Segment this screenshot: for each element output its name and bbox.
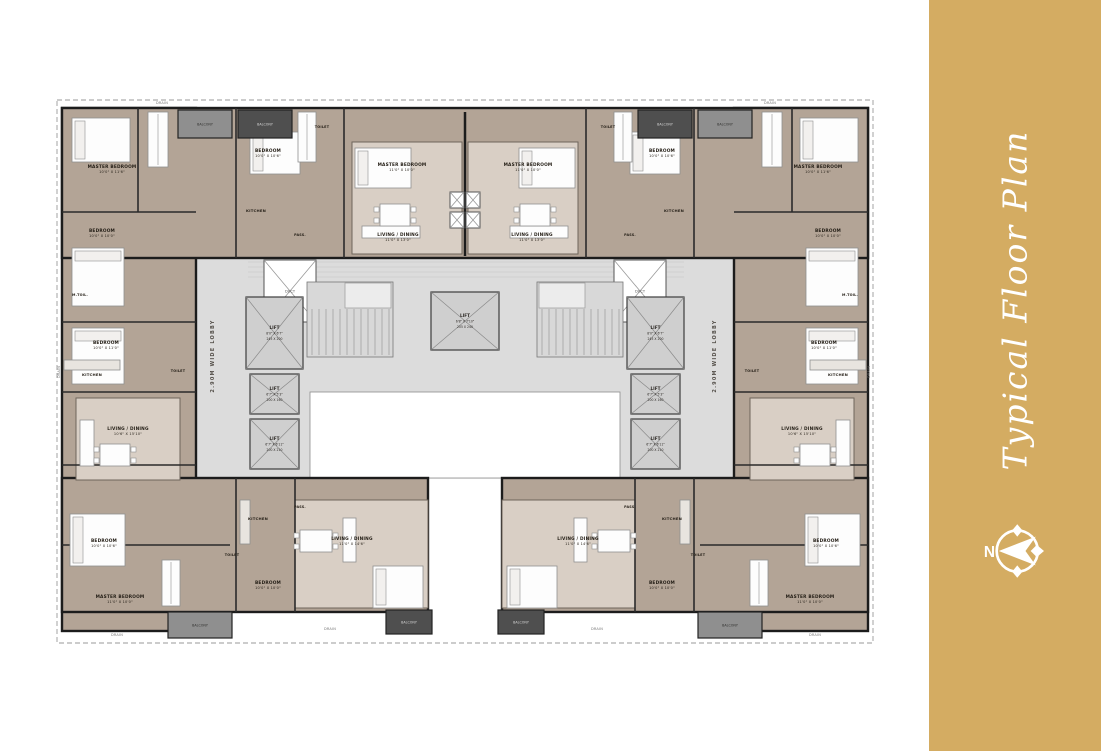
room-label: KITCHEN bbox=[248, 516, 268, 521]
balcony-label: BALCONY bbox=[192, 623, 209, 627]
duct-label: DUCT bbox=[635, 290, 646, 294]
compass-needle bbox=[999, 537, 1036, 566]
compass-tick-top bbox=[1012, 524, 1022, 536]
compass-tick-right bbox=[1031, 545, 1044, 557]
room-label: BEDROOM10'0" X 11'0" bbox=[93, 340, 119, 350]
chair bbox=[294, 544, 299, 549]
chair bbox=[94, 458, 99, 463]
drain-label: DRAIN bbox=[324, 627, 336, 631]
chair bbox=[794, 458, 799, 463]
room-label: BEDROOM10'0" X 10'0" bbox=[649, 580, 675, 590]
chair bbox=[551, 207, 556, 212]
room-label: KITCHEN bbox=[828, 372, 848, 377]
lift-label: LIFT bbox=[651, 436, 661, 441]
lift-label: 6'7" X 6'11" bbox=[265, 442, 284, 446]
chair bbox=[631, 533, 636, 538]
lift-label: 200 X 210 bbox=[267, 448, 283, 452]
chair bbox=[294, 533, 299, 538]
lobby-label: 2.90M WIDE LOBBY bbox=[712, 319, 718, 392]
compass-north-label: N bbox=[984, 544, 995, 561]
chair bbox=[631, 544, 636, 549]
balcony-label: BALCONY bbox=[257, 122, 274, 126]
room-label: PASS. bbox=[294, 505, 306, 509]
room-label: BEDROOM10'0" X 10'6" bbox=[813, 538, 839, 548]
room-label: TOILET bbox=[315, 125, 330, 129]
lift-label: LIFT bbox=[270, 386, 280, 391]
room-label: TOILET bbox=[171, 369, 186, 373]
kitchen-counter bbox=[810, 360, 866, 370]
courtyard-void bbox=[310, 392, 620, 478]
drain-label: DRAIN bbox=[764, 101, 776, 105]
dining-table bbox=[800, 444, 830, 466]
lift-label: 8'0" X 6'7" bbox=[647, 331, 664, 335]
room-label: TOILET bbox=[745, 369, 760, 373]
title-sidebar: Typical Floor Plan N bbox=[929, 0, 1101, 751]
chair bbox=[514, 207, 519, 212]
balcony-label: BALCONY bbox=[197, 122, 214, 126]
bed-pillow bbox=[376, 569, 386, 605]
chair bbox=[94, 447, 99, 452]
lift-label: LIFT bbox=[460, 313, 470, 318]
chair bbox=[794, 447, 799, 452]
plan-canvas: DUCTDUCTLIFT8'0" X 6'7"245 X 200LIFT8'0"… bbox=[0, 0, 929, 751]
bed-pillow bbox=[75, 251, 121, 261]
room-label: BEDROOM10'0" X 11'0" bbox=[811, 340, 837, 350]
kitchen-counter bbox=[680, 500, 690, 544]
balcony-label: BALCONY bbox=[401, 620, 418, 624]
bed-pillow bbox=[809, 331, 855, 341]
room-label: BEDROOM10'0" X 10'0" bbox=[815, 228, 841, 238]
chair bbox=[411, 218, 416, 223]
chair bbox=[831, 447, 836, 452]
room-label: KITCHEN bbox=[664, 208, 684, 213]
lift-label: 6'8" X 7'10" bbox=[456, 319, 475, 323]
balcony-label: BALCONY bbox=[657, 122, 674, 126]
lift-label: LIFT bbox=[651, 386, 661, 391]
drain-label: DRAIN bbox=[809, 633, 821, 637]
room-label: BEDROOM10'0" X 10'0" bbox=[255, 580, 281, 590]
lift-label: 200 X 210 bbox=[648, 448, 664, 452]
balcony-label: BALCONY bbox=[717, 122, 734, 126]
lift-label: LIFT bbox=[651, 325, 661, 330]
lift-label: 200 X 160 bbox=[648, 398, 664, 402]
room-label: KITCHEN bbox=[662, 516, 682, 521]
dining-table bbox=[520, 204, 550, 226]
chair bbox=[131, 458, 136, 463]
chair bbox=[551, 218, 556, 223]
sofa bbox=[80, 420, 94, 466]
chair bbox=[592, 544, 597, 549]
stair-landing bbox=[539, 283, 585, 308]
room-label: KITCHEN bbox=[82, 372, 102, 377]
stair-landing bbox=[345, 283, 391, 308]
screenshot-root: DUCTDUCTLIFT8'0" X 6'7"245 X 200LIFT8'0"… bbox=[0, 0, 1101, 751]
lift-label: 205 X 240 bbox=[457, 325, 473, 329]
room-label: M.TOIL. bbox=[842, 293, 858, 297]
lift-label: 8'0" X 6'7" bbox=[266, 331, 283, 335]
lift-label: 6'7" X 5'3" bbox=[647, 392, 664, 396]
lobby-label: 2.90M WIDE LOBBY bbox=[210, 319, 216, 392]
room-label: KITCHEN bbox=[246, 208, 266, 213]
room-label: BEDROOM10'0" X 10'6" bbox=[255, 148, 281, 158]
chair bbox=[131, 447, 136, 452]
chair bbox=[411, 207, 416, 212]
lift-label: 6'7" X 5'3" bbox=[266, 392, 283, 396]
lift-label: 245 X 200 bbox=[648, 337, 664, 341]
chair bbox=[333, 544, 338, 549]
bed-pillow bbox=[75, 331, 121, 341]
lift-label: LIFT bbox=[270, 325, 280, 330]
room-label: BEDROOM10'0" X 10'6" bbox=[649, 148, 675, 158]
bed-pillow bbox=[809, 251, 855, 261]
room-label: M.TOIL. bbox=[72, 293, 88, 297]
sofa bbox=[836, 420, 850, 466]
kitchen-counter bbox=[240, 500, 250, 544]
balcony-label: BALCONY bbox=[722, 623, 739, 627]
dining-table bbox=[100, 444, 130, 466]
drain-label: DRAIN bbox=[57, 366, 61, 378]
room-label: TOILET bbox=[691, 553, 706, 557]
dining-table bbox=[300, 530, 332, 552]
room-label: PASS. bbox=[624, 505, 636, 509]
lift-label: 6'7" X 6'11" bbox=[646, 442, 665, 446]
room-label: TOILET bbox=[225, 553, 240, 557]
compass-icon: N bbox=[976, 515, 1048, 587]
lift-label: LIFT bbox=[270, 436, 280, 441]
bed-pillow bbox=[73, 517, 83, 563]
chair bbox=[374, 207, 379, 212]
floor-plan-svg: DUCTDUCTLIFT8'0" X 6'7"245 X 200LIFT8'0"… bbox=[0, 0, 929, 751]
dining-table bbox=[598, 530, 630, 552]
room-label: BEDROOM10'0" X 10'0" bbox=[89, 228, 115, 238]
bed-pillow bbox=[75, 121, 85, 159]
compass-tick-bottom bbox=[1012, 565, 1022, 577]
room-label: PASS. bbox=[624, 233, 636, 237]
drain-label: DRAIN bbox=[156, 101, 168, 105]
lift-label: 245 X 200 bbox=[267, 337, 283, 341]
bed-pillow bbox=[803, 121, 813, 159]
dining-table bbox=[380, 204, 410, 226]
bed-pillow bbox=[633, 135, 643, 171]
room-label: PASS. bbox=[294, 233, 306, 237]
lift-label: 200 X 160 bbox=[267, 398, 283, 402]
drain-label: DRAIN bbox=[591, 627, 603, 631]
kitchen-counter bbox=[64, 360, 120, 370]
room-label: BEDROOM10'0" X 10'6" bbox=[91, 538, 117, 548]
bed-pillow bbox=[510, 569, 520, 605]
balcony-label: BALCONY bbox=[513, 620, 530, 624]
drain-label: DRAIN bbox=[867, 366, 871, 378]
bed-pillow bbox=[358, 151, 368, 185]
chair bbox=[374, 218, 379, 223]
drain-label: DRAIN bbox=[111, 633, 123, 637]
page-title: Typical Floor Plan bbox=[996, 130, 1035, 471]
duct-label: DUCT bbox=[285, 290, 296, 294]
chair bbox=[831, 458, 836, 463]
chair bbox=[514, 218, 519, 223]
room-label: TOILET bbox=[601, 125, 616, 129]
